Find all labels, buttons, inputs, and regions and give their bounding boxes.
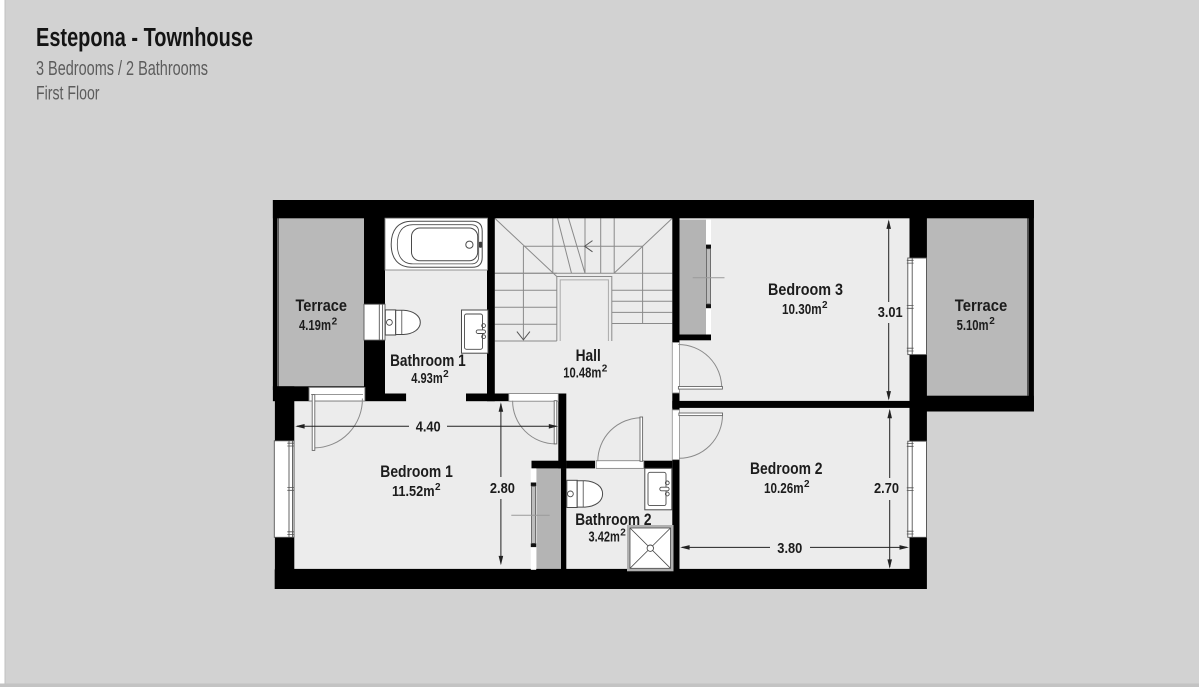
svg-text:2: 2 <box>620 528 626 539</box>
svg-text:11.52m: 11.52m <box>392 483 435 500</box>
svg-text:2: 2 <box>332 316 338 327</box>
svg-text:3.80: 3.80 <box>777 540 802 557</box>
svg-text:3.01: 3.01 <box>878 304 903 321</box>
svg-text:2: 2 <box>989 316 995 327</box>
svg-text:5.10m: 5.10m <box>957 317 989 334</box>
svg-text:2: 2 <box>602 363 608 374</box>
svg-text:First Floor: First Floor <box>36 84 100 105</box>
svg-text:10.26m: 10.26m <box>764 480 804 497</box>
svg-text:2.70: 2.70 <box>874 480 899 497</box>
svg-text:Bedroom 1: Bedroom 1 <box>380 462 453 481</box>
svg-text:Estepona - Townhouse: Estepona - Townhouse <box>36 24 253 52</box>
svg-text:2.80: 2.80 <box>490 480 515 497</box>
svg-text:Terrace: Terrace <box>296 296 348 315</box>
svg-text:Bedroom 2: Bedroom 2 <box>750 459 823 478</box>
svg-text:Bathroom 2: Bathroom 2 <box>575 510 651 529</box>
svg-text:3.42m: 3.42m <box>589 529 620 546</box>
svg-text:4.93m: 4.93m <box>411 370 442 387</box>
svg-text:Bathroom 1: Bathroom 1 <box>390 351 466 370</box>
svg-text:10.48m: 10.48m <box>563 364 601 381</box>
svg-text:Hall: Hall <box>576 346 601 365</box>
svg-text:Bedroom 3: Bedroom 3 <box>768 280 843 299</box>
svg-text:2: 2 <box>435 482 441 493</box>
svg-text:Terrace: Terrace <box>955 296 1007 315</box>
svg-text:2: 2 <box>822 300 828 311</box>
svg-text:4.40: 4.40 <box>416 418 441 435</box>
svg-text:3 Bedrooms / 2 Bathrooms: 3 Bedrooms / 2 Bathrooms <box>36 58 208 80</box>
svg-text:10.30m: 10.30m <box>782 301 822 318</box>
svg-text:4.19m: 4.19m <box>299 317 331 334</box>
svg-text:2: 2 <box>443 369 449 380</box>
svg-text:2: 2 <box>804 479 810 490</box>
